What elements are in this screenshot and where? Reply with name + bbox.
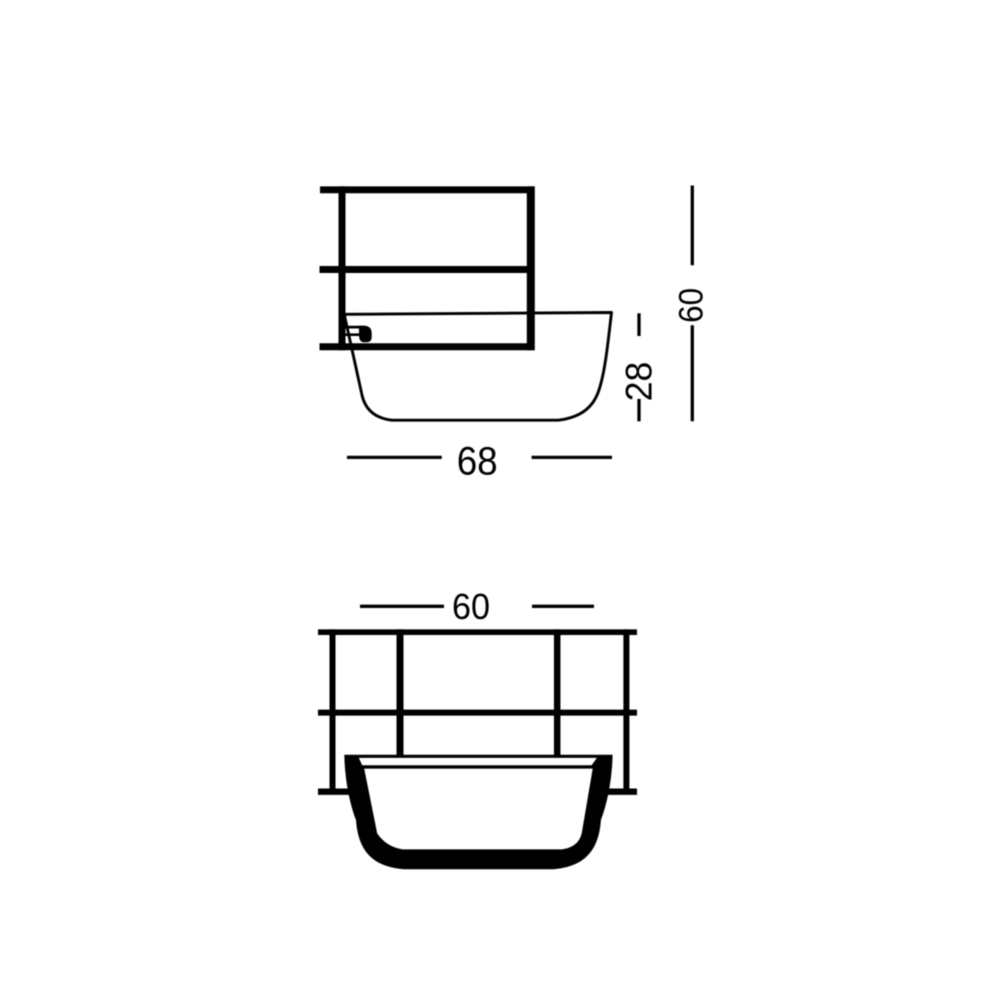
svg-text:68: 68 [457, 440, 498, 484]
svg-text:60: 60 [672, 288, 710, 323]
svg-text:60: 60 [452, 586, 490, 627]
svg-text:28: 28 [619, 362, 660, 402]
